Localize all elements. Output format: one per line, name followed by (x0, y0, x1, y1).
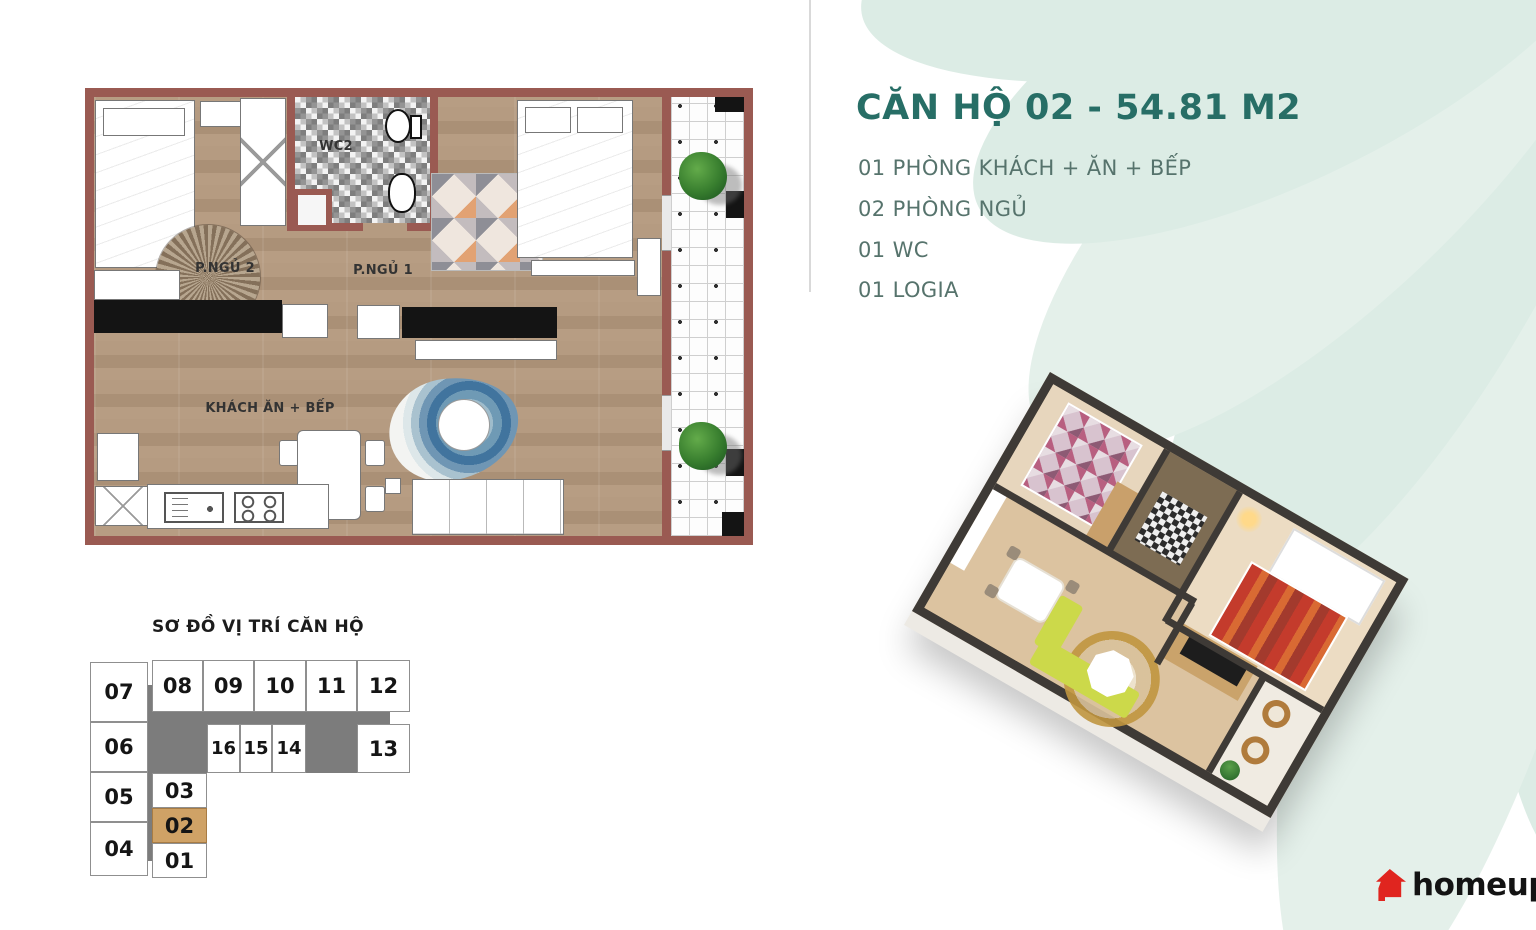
wardrobe-band-right (402, 307, 557, 338)
feature-item-loggia: 01 LOGIA (858, 278, 959, 302)
floor-plan-2d: WC2 P.NGỦ 2 P.NGỦ 1 KHÁCH ĂN + BẾP (85, 88, 753, 545)
side-table (385, 478, 401, 494)
render-lamp-glow (1231, 501, 1267, 537)
feature-item-living: 01 PHÒNG KHÁCH + ĂN + BẾP (858, 156, 1191, 180)
room-label-bedroom1: P.NGỦ 1 (338, 263, 428, 278)
corridor-block (306, 724, 357, 773)
render-chair (983, 583, 999, 599)
unit-cell-05: 05 (90, 772, 148, 822)
round-coffee-table (438, 399, 490, 451)
render-kitchen-cabinets (950, 488, 1007, 570)
unit-cell-01: 01 (152, 843, 207, 878)
unit-cell-14: 14 (272, 724, 306, 773)
unit-cell-10: 10 (254, 660, 306, 712)
render-checker-floor (1134, 491, 1207, 565)
dining-chair (365, 486, 385, 512)
structural-column (715, 97, 744, 112)
shelf-bedroom2 (94, 270, 180, 300)
fridge (97, 433, 139, 481)
unit-cell-03: 03 (152, 773, 207, 808)
unit-cell-02-highlighted: 02 (152, 808, 207, 843)
unit-cell-08: 08 (152, 660, 203, 712)
cabinet-box (357, 305, 400, 339)
dining-chair (365, 440, 385, 466)
stove-burners-icon (234, 492, 284, 523)
render-rattan-chair (1236, 731, 1274, 769)
apartment-title: CĂN HỘ 02 - 54.81 M2 (856, 88, 1416, 128)
feature-item-wc: 01 WC (858, 238, 929, 262)
pillow-bedroom1 (577, 107, 623, 133)
loggia-door-opening (662, 195, 671, 251)
unit-cell-06: 06 (90, 722, 148, 772)
structural-column (722, 512, 744, 536)
console-bedroom1 (637, 238, 661, 296)
unit-cell-04: 04 (90, 822, 148, 876)
wardrobe-band-left (94, 300, 282, 333)
corridor-block (152, 724, 207, 773)
potted-plant (679, 152, 727, 200)
house-arrow-icon (1376, 869, 1406, 901)
pillow-bedroom1 (525, 107, 571, 133)
wardrobe-bedroom2 (240, 98, 286, 226)
render-floor-slab (912, 372, 1409, 818)
render-rattan-chair (1257, 695, 1295, 733)
diagram-title: SƠ ĐỒ VỊ TRÍ CĂN HỘ (133, 617, 383, 637)
toilet-tank-icon (410, 115, 422, 139)
bench-bedroom1 (531, 260, 635, 276)
unit-cell-12: 12 (357, 660, 410, 712)
dining-chair (279, 440, 299, 466)
room-label-bedroom2: P.NGỦ 2 (180, 261, 270, 276)
unit-cell-13: 13 (357, 724, 410, 773)
kitchen-sink-icon (164, 492, 224, 523)
loggia-wall (662, 97, 671, 536)
cabinet-box (282, 304, 328, 338)
unit-cell-09: 09 (203, 660, 254, 712)
loggia-door-opening (662, 395, 671, 451)
sink-icon (388, 173, 416, 213)
unit-cell-15: 15 (240, 724, 272, 773)
corridor (143, 712, 390, 724)
unit-location-diagram: SƠ ĐỒ VỊ TRÍ CĂN HỘ 07 06 05 04 08 09 10… (85, 615, 430, 895)
kitchen-cabinet (95, 486, 151, 526)
pillow-bedroom2 (103, 108, 185, 136)
room-label-living: KHÁCH ĂN + BẾP (195, 401, 345, 416)
unit-cell-16: 16 (207, 724, 240, 773)
unit-cell-11: 11 (306, 660, 357, 712)
homeup-logo: homeup (1376, 869, 1536, 901)
feature-item-bedrooms: 02 PHÒNG NGỦ (858, 197, 1027, 221)
room-label-wc2: WC2 (306, 139, 366, 154)
vertical-divider (809, 0, 811, 292)
toilet-icon (385, 109, 411, 143)
sofa (412, 479, 564, 535)
dresser-bedroom2 (200, 101, 242, 127)
render-plant (1216, 757, 1243, 784)
technical-shaft (292, 189, 332, 231)
render-chair (1064, 579, 1080, 595)
logo-text: homeup (1412, 870, 1536, 901)
apartment-3d-render (900, 352, 1440, 852)
unit-cell-07: 07 (90, 662, 148, 722)
potted-plant (679, 422, 727, 470)
media-shelf (415, 340, 557, 360)
kitchen-counter (147, 484, 329, 529)
